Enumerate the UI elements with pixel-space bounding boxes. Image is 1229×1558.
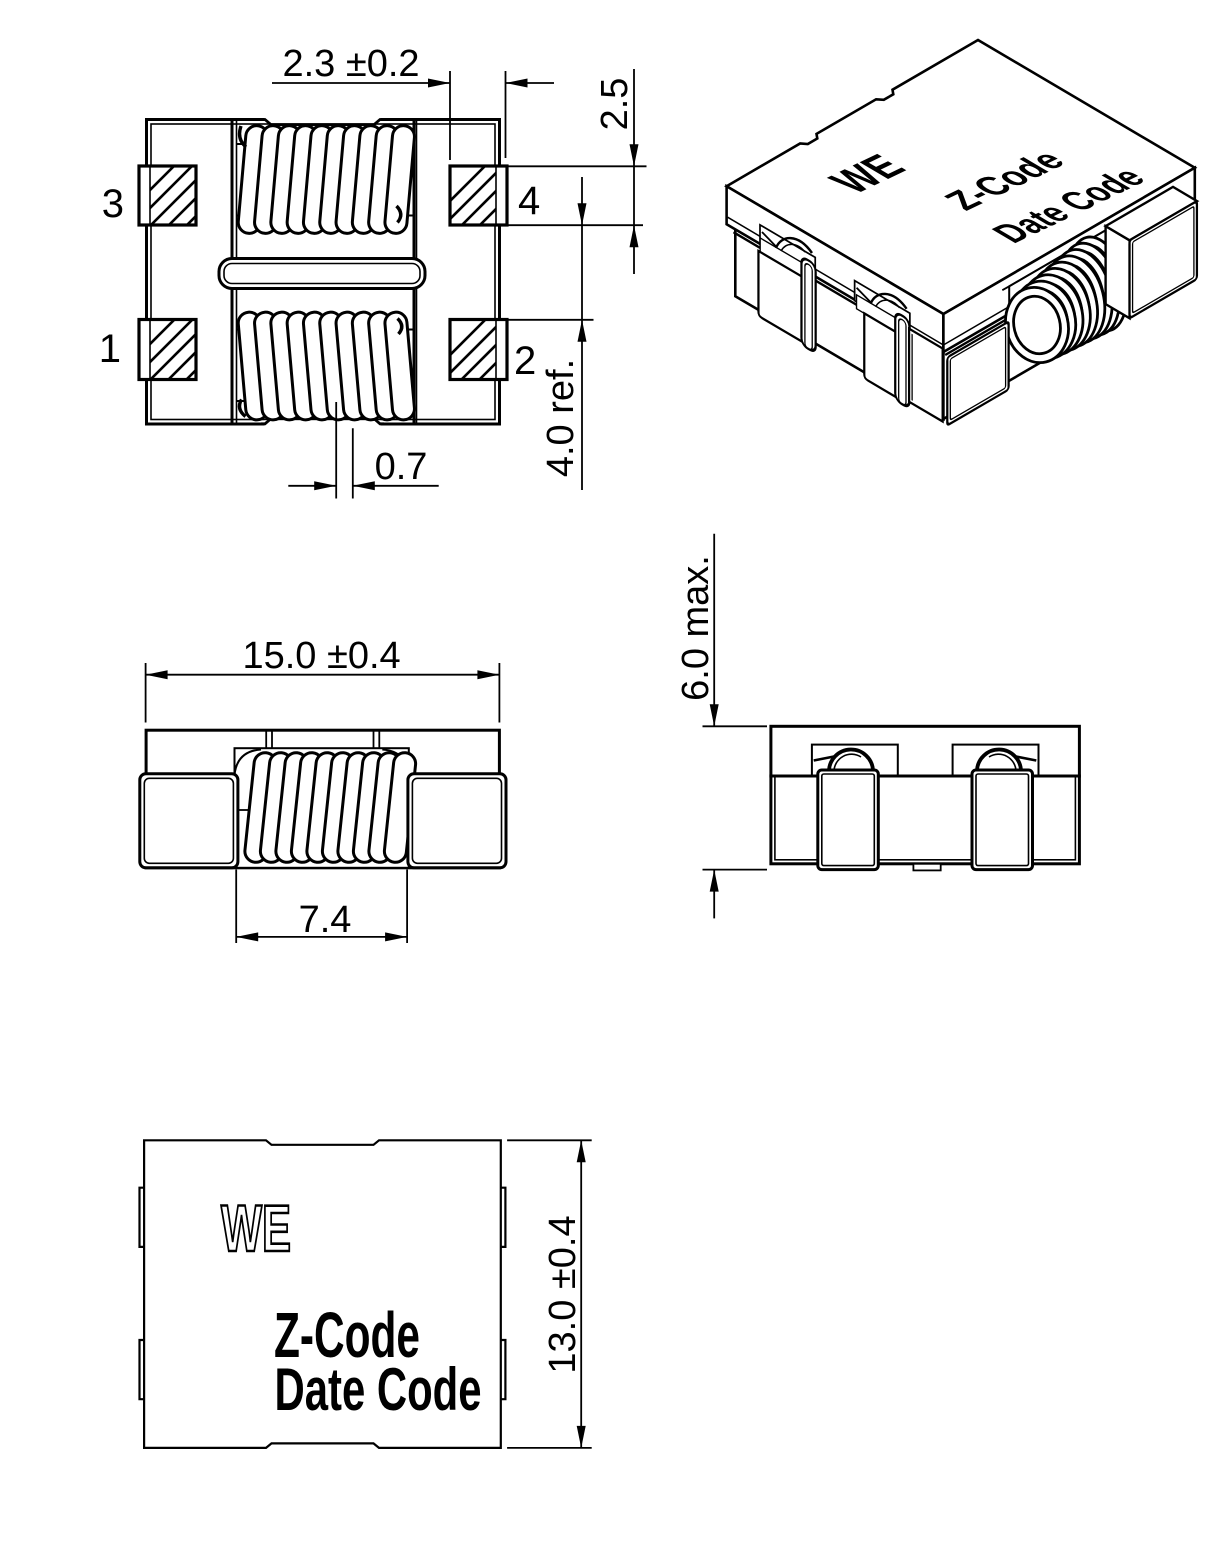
svg-text:1: 1 xyxy=(99,327,121,371)
svg-text:4: 4 xyxy=(518,179,540,223)
svg-text:2.5: 2.5 xyxy=(594,78,636,131)
svg-text:3: 3 xyxy=(102,182,124,226)
svg-text:Date Code: Date Code xyxy=(275,1356,482,1423)
svg-text:2: 2 xyxy=(514,339,536,383)
svg-text:13.0 ±0.4: 13.0 ±0.4 xyxy=(542,1215,584,1373)
svg-text:7.4: 7.4 xyxy=(299,899,352,941)
svg-text:WE: WE xyxy=(221,1191,291,1265)
svg-text:15.0 ±0.4: 15.0 ±0.4 xyxy=(242,635,400,677)
svg-text:2.3 ±0.2: 2.3 ±0.2 xyxy=(282,43,419,85)
svg-text:4.0 ref.: 4.0 ref. xyxy=(540,359,582,477)
svg-text:0.7: 0.7 xyxy=(375,446,428,488)
svg-text:6.0 max.: 6.0 max. xyxy=(675,555,717,701)
